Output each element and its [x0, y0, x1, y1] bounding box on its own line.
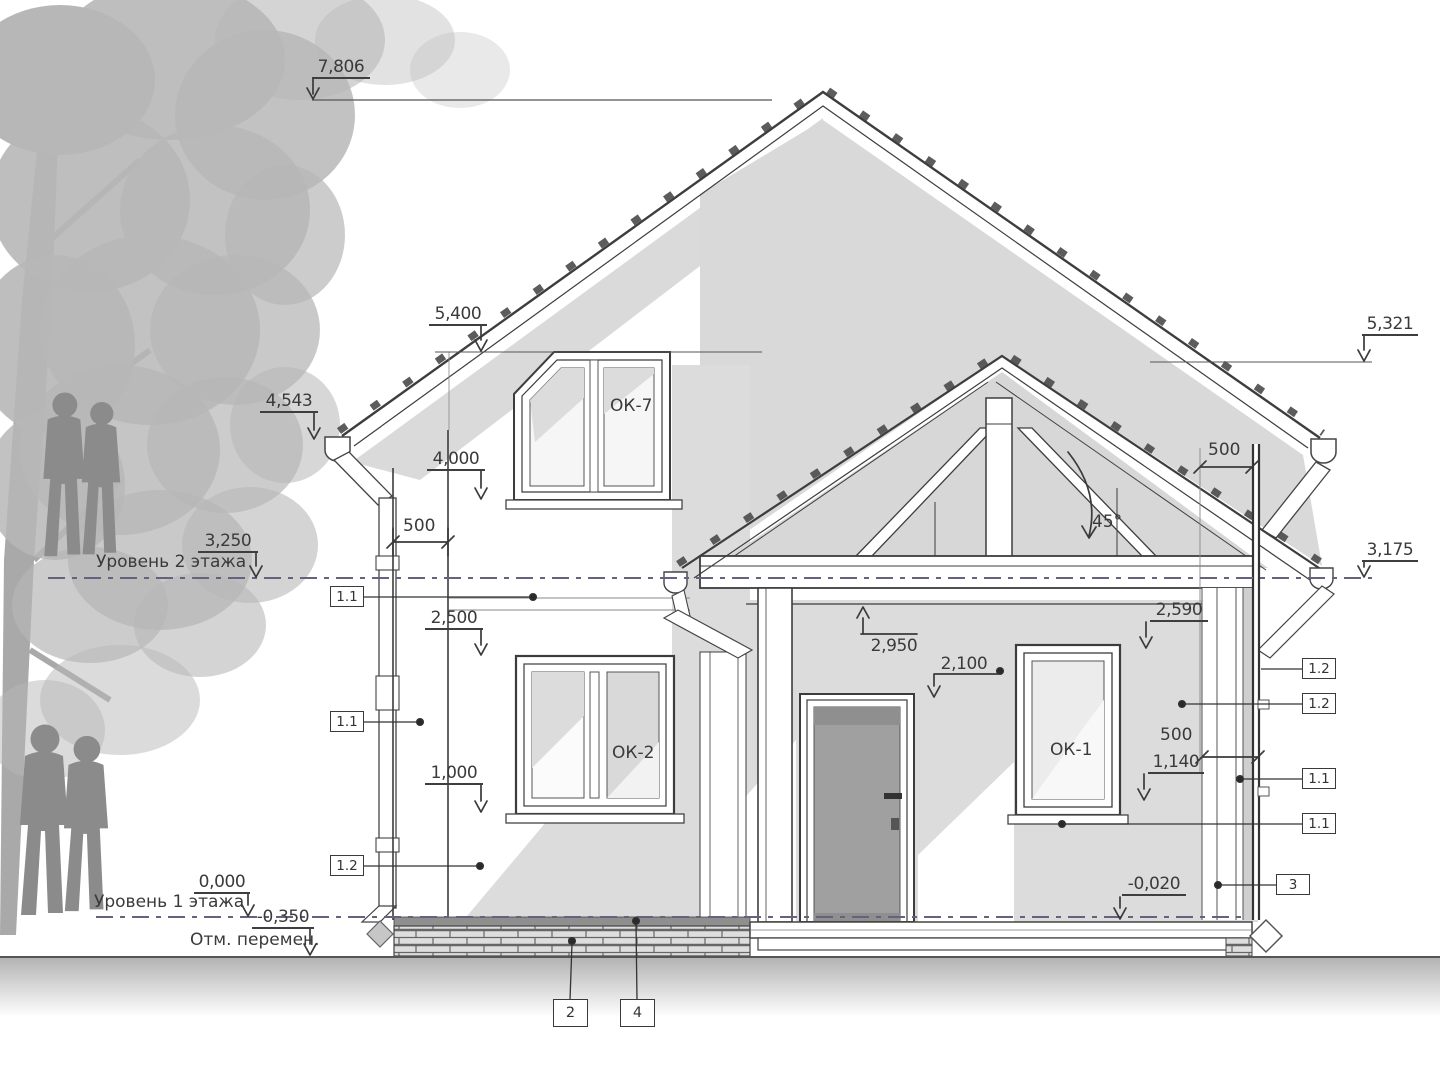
callout-1-2-left: 1.2 [330, 855, 364, 876]
corner-board [700, 652, 746, 922]
floor1-label: Уровень 1 этажа [94, 892, 244, 912]
dim-wall-thickness: 500 [1160, 725, 1192, 745]
level-2590: 2,590 [1150, 600, 1208, 622]
dim-overhang-left: 500 [403, 516, 435, 536]
level-1000: 1,000 [425, 763, 483, 785]
level-m0350: -0,350 [252, 907, 314, 929]
level-4543: 4,543 [260, 391, 318, 413]
left-gutter-downpipe [325, 437, 399, 922]
level-2100: 2,100 [938, 654, 990, 674]
callout-1-1-right-upper: 1.1 [1302, 768, 1336, 789]
callout-1-2-right-lower: 1.2 [1302, 693, 1336, 714]
window-ok7 [506, 352, 682, 509]
window-ok1 [1008, 645, 1128, 824]
level-2950: 2,950 [868, 636, 920, 656]
architectural-section-drawing: 7,806 5,400 4,543 4,000 500 3,250 Уровен… [0, 0, 1440, 1080]
floor2-label: Уровень 2 этажа [96, 552, 246, 572]
callout-1-1-left-upper: 1.1 [330, 586, 364, 607]
level-ridge: 7,806 [312, 57, 370, 79]
level-2500: 2,500 [425, 608, 483, 630]
right-wall-section [1200, 444, 1269, 920]
level-m0020: -0,020 [1122, 874, 1186, 896]
ground-shading [0, 957, 1440, 1017]
window-ok2 [506, 656, 684, 823]
level-3175: 3,175 [1362, 540, 1418, 562]
callout-2: 2 [553, 999, 588, 1027]
porch-beam [700, 556, 1258, 588]
roof-angle: 45° [1092, 512, 1122, 532]
ground-label: Отм. перемен. [190, 930, 320, 950]
level-0000: 0,000 [194, 872, 250, 894]
level-4000: 4,000 [427, 449, 485, 471]
callout-1-1-left-lower: 1.1 [330, 711, 364, 732]
level-5400: 5,400 [429, 304, 487, 326]
porch-post [758, 588, 792, 922]
window-label-ok2: ОК-2 [612, 743, 654, 763]
window-label-ok1: ОК-1 [1050, 740, 1092, 760]
callout-1-1-right-lower: 1.1 [1302, 813, 1336, 834]
dim-overhang-right: 500 [1208, 440, 1240, 460]
level-5321: 5,321 [1362, 314, 1418, 336]
window-label-ok7: ОК-7 [610, 396, 652, 416]
door-handle [884, 793, 902, 799]
callout-1-2-right-upper: 1.2 [1302, 658, 1336, 679]
callout-4: 4 [620, 999, 655, 1027]
callout-3: 3 [1276, 874, 1310, 895]
level-3250: 3,250 [198, 531, 258, 553]
level-1140: 1,140 [1148, 752, 1204, 774]
entry-door [800, 694, 914, 922]
